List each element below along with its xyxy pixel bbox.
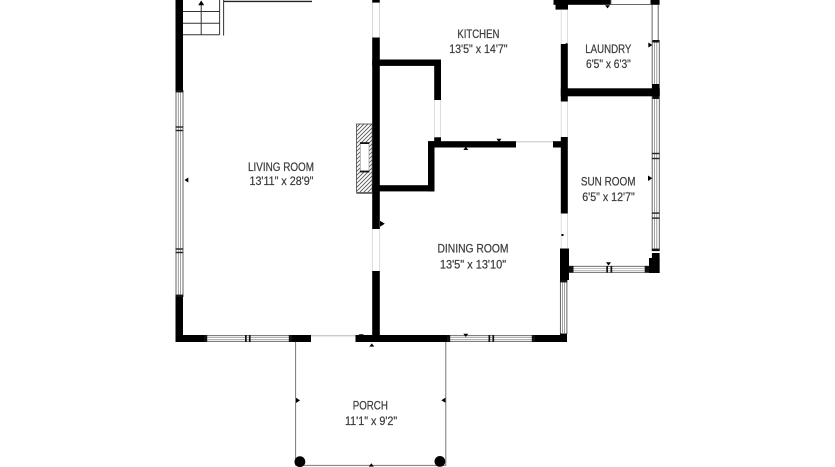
svg-text:LAUNDRY: LAUNDRY (585, 44, 631, 56)
svg-text:6'5" x 6'3": 6'5" x 6'3" (586, 59, 631, 71)
svg-text:SUN ROOM: SUN ROOM (581, 177, 636, 189)
svg-text:6'5" x 12'7": 6'5" x 12'7" (582, 192, 635, 204)
svg-text:13'5" x 13'10": 13'5" x 13'10" (440, 259, 506, 271)
svg-text:13'11" x 28'9": 13'11" x 28'9" (250, 176, 314, 188)
svg-text:11'1" x 9'2": 11'1" x 9'2" (345, 416, 397, 428)
svg-text:KITCHEN: KITCHEN (457, 29, 499, 41)
svg-text:LIVING ROOM: LIVING ROOM (248, 162, 314, 174)
svg-text:DINING ROOM: DINING ROOM (437, 243, 508, 255)
svg-text:PORCH: PORCH (353, 401, 388, 413)
svg-text:13'5" x 14'7": 13'5" x 14'7" (449, 44, 507, 56)
